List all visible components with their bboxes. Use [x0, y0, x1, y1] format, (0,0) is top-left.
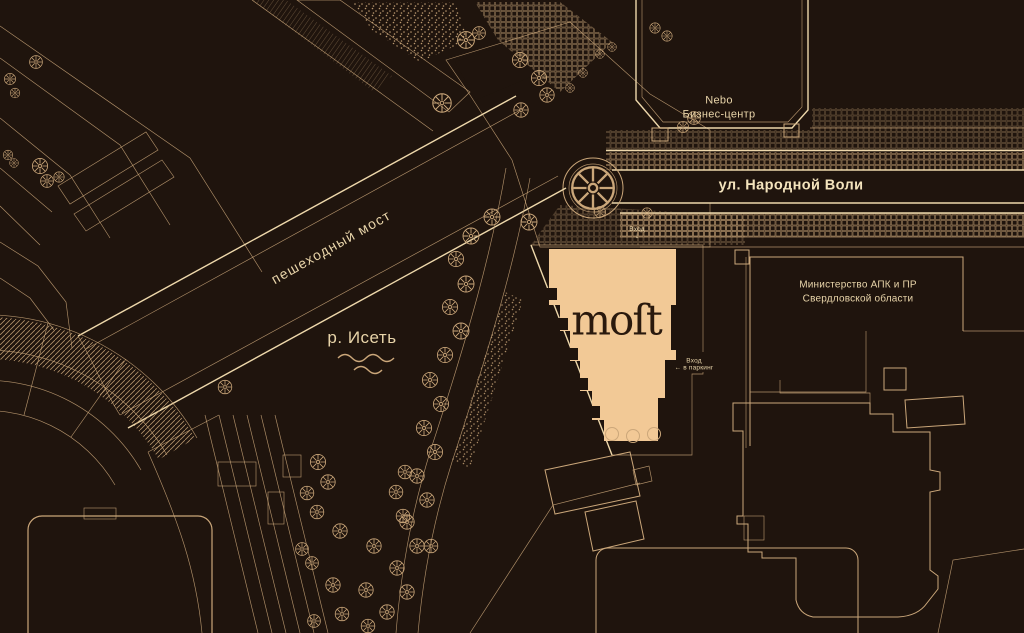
tree-icon	[650, 23, 660, 33]
building-outline	[596, 548, 858, 633]
tree-icon	[596, 50, 605, 59]
sidewalk-pavers	[812, 108, 1024, 130]
tree-icon	[410, 539, 424, 553]
label-entrance: Вход ↓	[629, 226, 645, 240]
tree-icon	[677, 121, 688, 132]
tree-icon	[390, 561, 404, 575]
tree-icon	[427, 444, 442, 459]
tree-icon	[389, 485, 403, 499]
tree-icon	[380, 605, 394, 619]
ministry-line1: Министерство АПК и ПР	[799, 279, 917, 293]
tree-icon	[422, 372, 437, 387]
tree-icon	[3, 150, 13, 160]
tree-icon	[458, 276, 474, 292]
dock-hatch	[268, 492, 284, 524]
tree-icon	[463, 228, 479, 244]
site-plan-map: Nebo Бизнес-центр ул. Народной Воли пеше…	[0, 0, 1024, 633]
tree-icon	[4, 73, 15, 84]
tree-icon	[484, 209, 500, 225]
stairs-hatch	[84, 508, 116, 519]
plaza-and-street	[446, 2, 1024, 247]
map-canvas	[0, 0, 1024, 633]
label-ministry: Министерство АПК и ПР Свердловской облас…	[799, 279, 917, 306]
tree-icon	[30, 56, 43, 69]
tree-icon	[531, 70, 546, 85]
tree-icon	[433, 94, 451, 112]
ministry-line2: Свердловской области	[799, 292, 917, 306]
tree-icon	[41, 175, 54, 188]
tree-icon	[521, 214, 537, 230]
tree-icon	[398, 465, 412, 479]
tree-icon	[662, 31, 672, 41]
tree-icon	[308, 615, 321, 628]
arrow-down-icon: ↓	[629, 234, 645, 240]
tree-icon	[296, 543, 309, 556]
label-river-iset: р. Исеть	[327, 327, 396, 349]
bank-texture	[452, 292, 523, 468]
building-outline	[28, 516, 212, 633]
parking-line2: в паркинг	[683, 365, 713, 372]
tree-icon	[608, 43, 617, 52]
tree-icon	[367, 539, 381, 553]
nebo-line2: Бизнес-центр	[683, 108, 756, 122]
tree-icon	[442, 299, 457, 314]
label-parking-entrance: Вход ← в паркинг	[675, 358, 714, 373]
sidewalk-pavers	[606, 130, 1024, 150]
amphitheater	[0, 242, 212, 633]
tree-icon	[433, 396, 448, 411]
southeast-building-outline	[596, 380, 1024, 633]
tree-icon	[310, 454, 325, 469]
tree-icon	[54, 172, 64, 182]
tree-icon	[310, 505, 324, 519]
tree-icon	[300, 486, 314, 500]
tree-icon	[424, 539, 438, 553]
stairs-hatch	[744, 516, 764, 540]
tree-icon	[32, 158, 47, 173]
tree-icon	[437, 347, 452, 362]
parking-line1: Вход	[675, 358, 714, 365]
tree-icon	[335, 607, 349, 621]
tree-icon	[420, 493, 434, 507]
nebo-line1: Nebo	[683, 94, 756, 108]
tree-icon	[448, 251, 463, 266]
tree-icon	[566, 84, 575, 93]
sidewalk-pavers	[606, 152, 1024, 170]
tree-icon	[359, 583, 373, 597]
tree-icon	[361, 619, 375, 633]
tree-icon	[326, 578, 340, 592]
tree-icon	[10, 159, 19, 168]
tree-icon	[218, 380, 232, 394]
south-buildings	[470, 452, 652, 633]
tree-icon	[416, 420, 431, 435]
tree-icon	[453, 323, 469, 339]
tree-icon	[400, 585, 414, 599]
river-waves-icon	[338, 355, 394, 374]
tree-icon	[473, 27, 486, 40]
tree-icon	[10, 88, 20, 98]
tree-icon	[306, 557, 319, 570]
tree-icon	[579, 69, 588, 78]
most-logo: moſt	[571, 294, 661, 349]
label-nebo-business-center: Nebo Бизнес-центр	[683, 94, 756, 123]
tree-icon	[321, 475, 335, 489]
tree-icon	[333, 524, 347, 538]
arrow-left-icon: ←	[675, 365, 682, 372]
dock-hatch	[218, 462, 256, 486]
park-paths	[0, 0, 470, 272]
label-street-narodnoy-voli: ул. Народной Воли	[719, 177, 864, 196]
tree-icon	[540, 88, 554, 102]
